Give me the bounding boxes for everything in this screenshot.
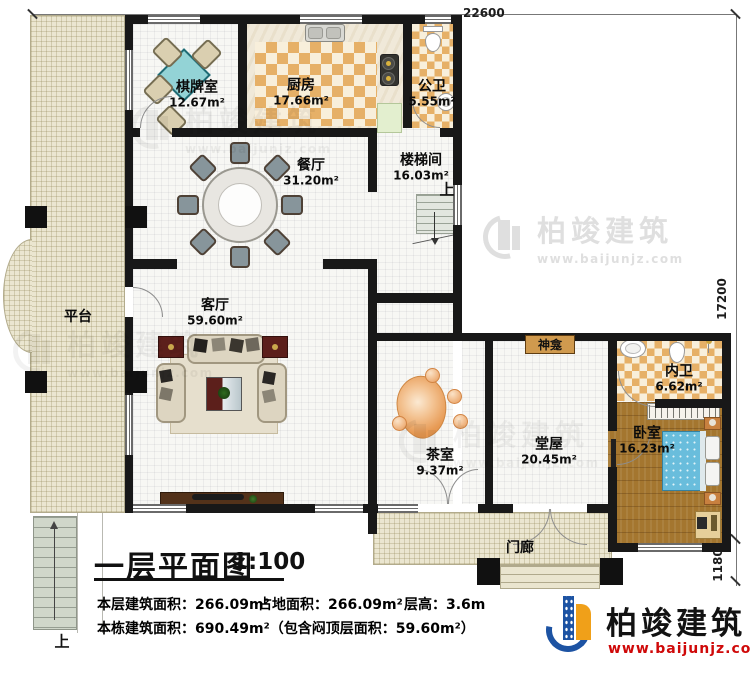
internal-stairs: [416, 194, 454, 234]
sink-basin: [308, 27, 323, 39]
info-total-area: 本栋建筑面积：690.49m²（包含闷顶层面积：59.60m²）: [97, 618, 475, 638]
room-label-inner-bath: 内卫 6.62m²: [655, 364, 702, 393]
stairs-up-label: 上: [439, 179, 454, 200]
room-label-porch: 门廊: [506, 541, 534, 557]
wall: [403, 24, 412, 128]
column: [25, 206, 47, 228]
title-underline: [94, 578, 284, 581]
window: [148, 15, 200, 24]
wall: [368, 504, 377, 534]
sofa-pillow: [262, 389, 276, 403]
window: [638, 543, 702, 552]
scale-label: 1:100: [232, 549, 305, 575]
platform-floor: [30, 15, 125, 513]
window: [315, 504, 363, 513]
watermark: 柏竣建筑 www.baijunjz.com: [482, 208, 684, 266]
brand-logo-icon: [482, 214, 528, 260]
wall: [655, 399, 722, 408]
kitchen-mat: [377, 103, 402, 133]
stool: [447, 389, 462, 404]
floor-plan: 22600 17200 1180: [0, 0, 750, 677]
bedroom-tv: [611, 439, 616, 467]
sofa-pillow: [262, 371, 276, 385]
window: [300, 15, 362, 24]
info-floor-area: 本层建筑面积：266.09m²: [97, 594, 270, 614]
wall: [368, 259, 377, 334]
nightstand-lamp: [709, 419, 716, 426]
wall: [125, 259, 177, 269]
tv: [192, 494, 244, 500]
window: [425, 15, 451, 24]
brand-url: www.baijunjz.com: [608, 641, 750, 657]
chair: [230, 246, 250, 268]
window: [133, 504, 186, 513]
logo-building-orange: [576, 604, 591, 640]
desk-item: [697, 517, 707, 529]
wall: [377, 293, 453, 303]
desk-item: [711, 515, 717, 531]
wall: [722, 333, 731, 552]
room-label-bedroom: 卧室 16.23m²: [619, 426, 675, 455]
room-label-tea: 茶室 9.37m²: [416, 448, 463, 477]
sofa-pillow: [159, 387, 173, 401]
side-table-ornament: [272, 344, 278, 350]
porch-steps: [500, 565, 600, 589]
burner-knob: [386, 61, 391, 66]
window: [125, 395, 133, 455]
toilet-tank: [423, 26, 443, 32]
room-label-living: 客厅 59.60m²: [187, 298, 243, 327]
shrine-label: 神龛: [538, 336, 562, 353]
wall: [702, 543, 731, 552]
wall: [608, 543, 638, 552]
room-label-chess: 棋牌室 12.67m²: [169, 80, 225, 109]
nightstand-lamp: [709, 494, 716, 501]
exterior-stairs-arrow-line: [54, 528, 55, 620]
dimension-line-right: [736, 14, 737, 586]
stairs-arrowhead: [431, 238, 439, 245]
column: [125, 206, 147, 228]
wall: [125, 15, 133, 50]
wall: [368, 137, 377, 192]
stairs-arrow-line: [434, 212, 435, 238]
column: [477, 558, 500, 585]
sofa-pillow: [245, 337, 260, 352]
bath-sink-basin: [625, 343, 641, 354]
watermark: 柏竣建筑 www.baijunjz.com: [12, 322, 214, 380]
brand-logo-icon: [546, 596, 600, 658]
plant: [249, 495, 257, 503]
column: [600, 558, 623, 585]
room-label-main-hall: 堂屋 20.45m²: [521, 437, 577, 466]
room-label-public-bath: 公卫 5.55m²: [408, 79, 455, 108]
dimension-right-label: 17200: [715, 269, 729, 329]
dining-table-center: [218, 183, 262, 227]
room-label-kitchen: 厨房 17.66m²: [273, 78, 329, 107]
wall-lamp-stem: [708, 344, 709, 353]
pillow: [705, 462, 720, 486]
exterior-stairs-arrowhead: [50, 521, 58, 529]
wall: [608, 467, 617, 552]
brand-name: 柏竣建筑: [606, 598, 746, 643]
burner-knob: [386, 76, 391, 81]
wall: [125, 504, 133, 513]
wall: [478, 504, 513, 513]
exterior-stairs-up-label: 上: [54, 631, 69, 652]
logo-building-blue: [563, 596, 574, 640]
info-land-area: 占地面积：266.09m²: [258, 594, 403, 614]
wall: [362, 15, 425, 24]
wall: [200, 15, 300, 24]
wall: [323, 259, 368, 269]
wall: [608, 341, 617, 431]
wall: [453, 225, 462, 341]
dimension-top-label: 22600: [463, 6, 505, 20]
info-floor-height: 层高：3.6m: [404, 594, 485, 614]
chair: [281, 195, 303, 215]
exterior-stairs: [33, 516, 77, 630]
room-label-dining: 餐厅 31.20m²: [283, 158, 339, 187]
sink-basin: [326, 27, 341, 39]
pillow: [705, 436, 720, 460]
sofa-pillow: [229, 338, 244, 353]
wall: [368, 341, 377, 504]
plant: [218, 387, 230, 399]
stool: [425, 368, 440, 383]
room-label-platform: 平台: [64, 310, 92, 326]
window: [378, 504, 418, 513]
wall: [440, 128, 453, 137]
brand-logo-icon: [130, 104, 176, 150]
wall: [186, 504, 315, 513]
chair: [177, 195, 199, 215]
brand-logo-icon: [12, 328, 58, 374]
